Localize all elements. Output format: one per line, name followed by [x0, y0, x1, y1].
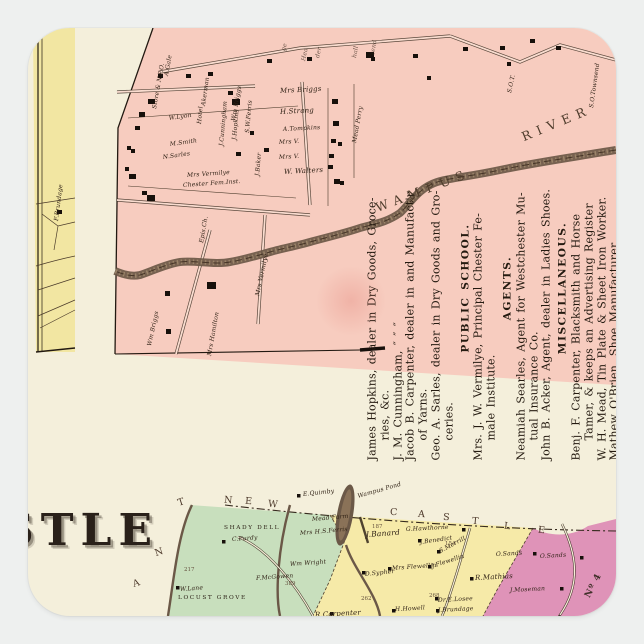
directory-entry: Benj. F. Carpenter, Blacksmith and Horse [570, 116, 583, 461]
map-label: N [224, 496, 233, 506]
directory-entry: Mathew O'Brien, Shoe Manufacturer. [609, 116, 616, 461]
directory-entry: ceries. [443, 116, 456, 461]
product-background: WAMPUS RIVER [0, 0, 644, 644]
directory-entry: Geo. A. Sarles, dealer in Dry Goods and … [430, 116, 443, 461]
map-label: W [268, 500, 279, 510]
directory-entry: Neamiah Searles, Agent for Westchester M… [515, 116, 528, 461]
map-label: L [504, 522, 511, 532]
business-directory-lines: James Hopkins, dealer in Dry Goods, Groc… [367, 116, 617, 461]
map-label: A [132, 578, 141, 589]
directory-heading: AGENTS. [501, 116, 514, 461]
directory-entry: John B. Acker, Agent, dealer in Ladies S… [541, 116, 554, 461]
map-label: T [472, 517, 479, 527]
business-directory: James Hopkins, dealer in Dry Goods, Groc… [367, 116, 617, 461]
map-label: E [245, 497, 253, 507]
township-title-fragment: STLE [28, 505, 159, 556]
map-label: E [538, 526, 546, 536]
directory-entry: male Institute. [486, 116, 499, 461]
map-label: S [443, 513, 450, 523]
directory-entry: ries, &c. [379, 116, 392, 461]
directory-entry: Tamer, & keeps an Advertising Register [583, 116, 596, 461]
map-label: C [390, 508, 398, 518]
directory-entry: James Hopkins, dealer in Dry Goods, Groc… [367, 116, 380, 461]
directory-heading: MISCELLANEOUS. [557, 116, 570, 461]
map-label: A [418, 510, 426, 520]
map-sticker: WAMPUS RIVER [28, 28, 616, 616]
map-label: T [177, 497, 186, 508]
directory-heading: PUBLIC SCHOOL. [459, 116, 472, 461]
